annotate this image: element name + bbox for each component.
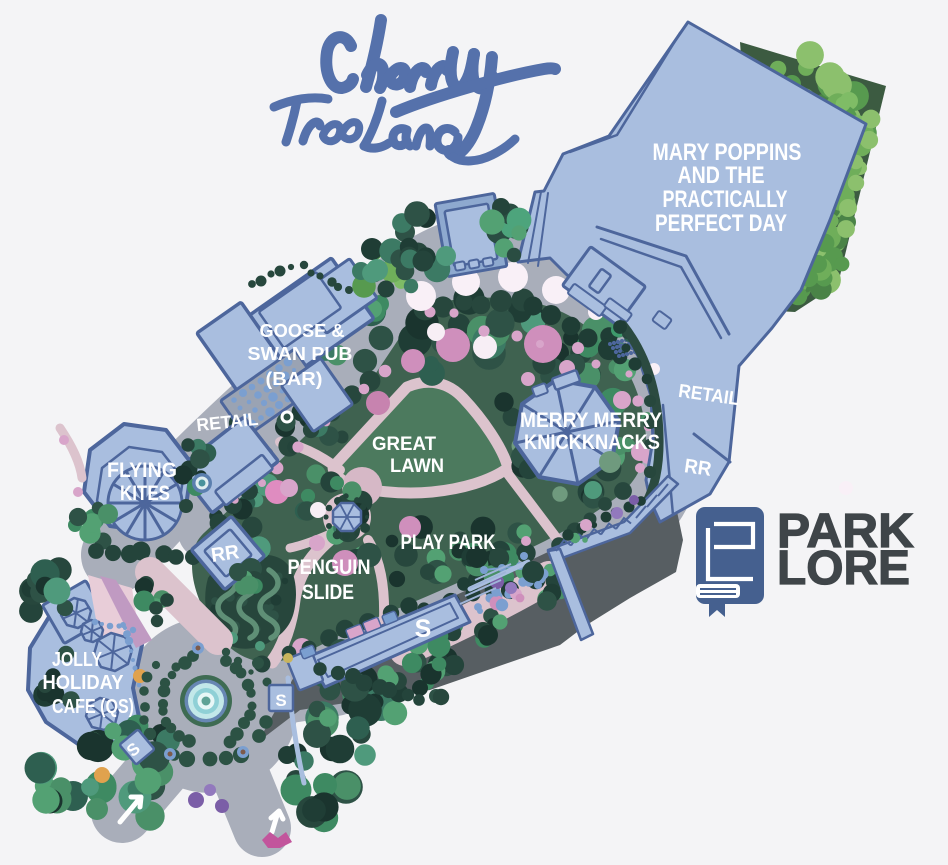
svg-text:LAWN: LAWN — [390, 456, 444, 477]
svg-text:AND THE: AND THE — [678, 162, 765, 189]
svg-text:HOLIDAY: HOLIDAY — [43, 672, 125, 694]
svg-text:LORE: LORE — [777, 542, 910, 595]
svg-text:RR: RR — [683, 455, 713, 481]
svg-text:PERFECT DAY: PERFECT DAY — [655, 210, 787, 237]
svg-text:KNICKKNACKS: KNICKKNACKS — [524, 431, 660, 454]
svg-text:(BAR): (BAR) — [266, 369, 323, 389]
svg-text:CAFE (QS): CAFE (QS) — [52, 696, 134, 718]
svg-text:S: S — [275, 691, 286, 710]
svg-text:PRACTICALLY: PRACTICALLY — [663, 186, 788, 213]
svg-text:MERRY MERRY: MERRY MERRY — [520, 409, 662, 432]
svg-text:RR: RR — [210, 541, 241, 567]
svg-text:JOLLY: JOLLY — [52, 649, 103, 671]
svg-text:FLYING: FLYING — [107, 459, 177, 482]
svg-text:PENGUIN: PENGUIN — [288, 556, 371, 579]
svg-text:GREAT: GREAT — [372, 434, 436, 455]
svg-text:SWAN PUB: SWAN PUB — [248, 344, 353, 364]
svg-text:S: S — [415, 615, 432, 643]
svg-text:SLIDE: SLIDE — [302, 581, 354, 604]
svg-text:KITES: KITES — [120, 482, 170, 505]
svg-text:GOOSE &: GOOSE & — [260, 321, 345, 341]
svg-text:PLAY PARK: PLAY PARK — [401, 531, 496, 554]
